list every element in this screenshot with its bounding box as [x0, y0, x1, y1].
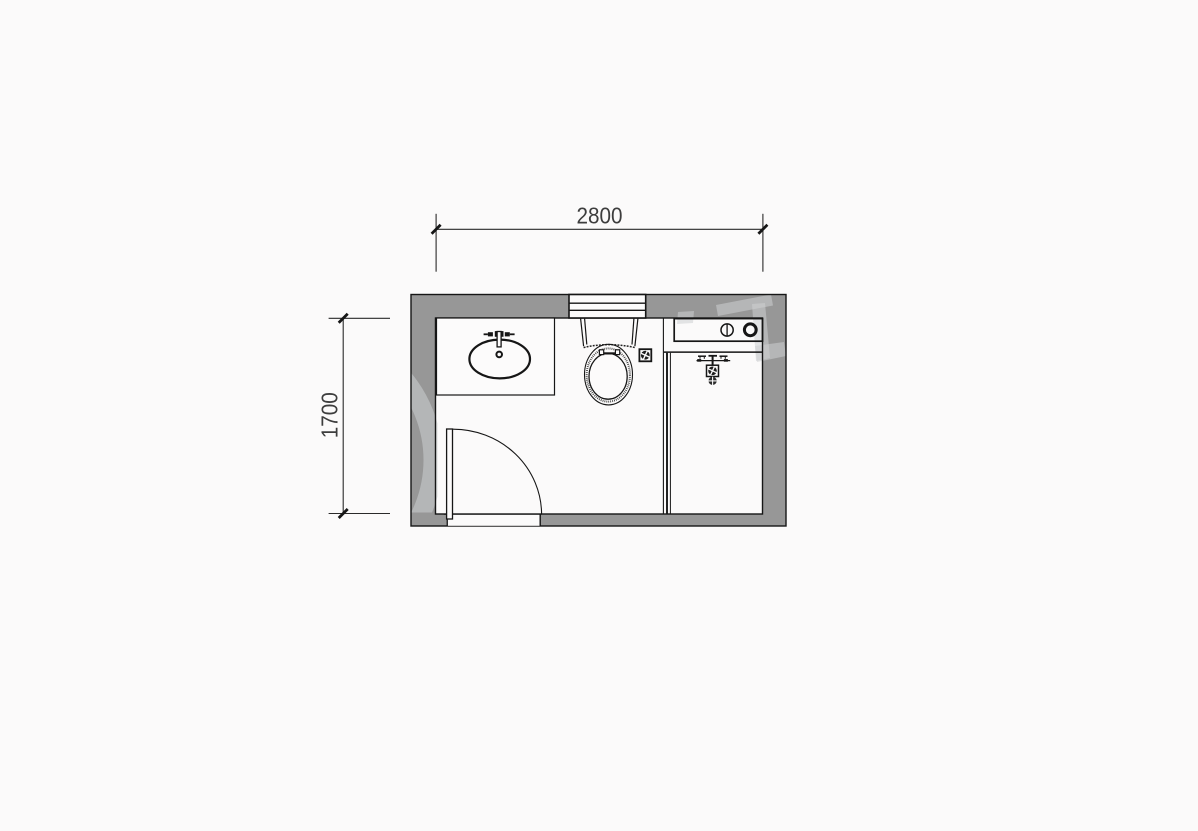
svg-text:1700: 1700 [316, 392, 342, 438]
svg-text:2800: 2800 [577, 203, 623, 229]
